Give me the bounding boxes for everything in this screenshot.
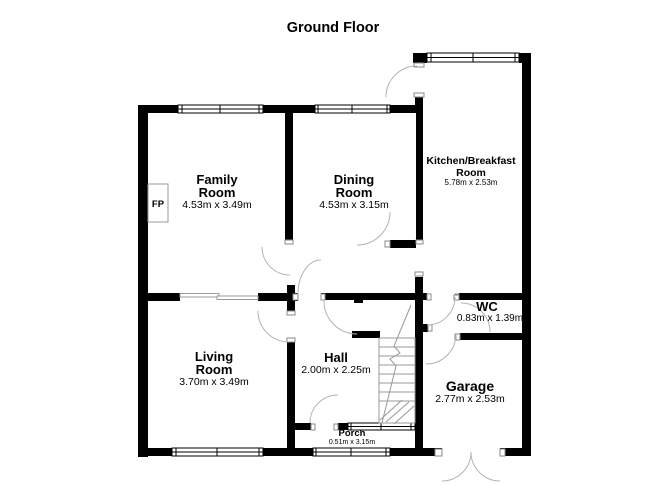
page-title: Ground Floor — [287, 20, 380, 36]
garage-name: Garage — [446, 378, 494, 394]
wall-hall-north — [321, 293, 427, 300]
fireplace-label: FP — [152, 199, 165, 210]
wall-family-living-left — [138, 293, 180, 301]
jamb — [500, 449, 505, 456]
wall-right-exterior — [522, 53, 531, 456]
window-dining-top — [315, 105, 390, 113]
wc-dims: 0.83m x 1.39m — [457, 313, 523, 324]
wall-stair-stub — [352, 331, 380, 338]
hall-name: Hall — [324, 350, 348, 365]
wall-kitchen-corner-tl — [413, 53, 427, 63]
door-arc-dining — [357, 212, 390, 245]
porch-dims: 0.51m x 3.15m — [329, 439, 375, 446]
door-arc-garage-door-left — [442, 452, 471, 481]
floorplan-page: FP Ground Floor Family Room 4.53m x 3.49… — [0, 0, 668, 486]
porch-name: Porch — [339, 428, 366, 439]
jamb — [285, 240, 293, 244]
jamb — [311, 424, 315, 430]
wall-dining-kitchen-divider — [416, 113, 423, 240]
jamb — [385, 241, 390, 247]
jamb — [414, 93, 424, 97]
wall-porch-top-left — [287, 423, 311, 430]
wall-cross-poke — [287, 285, 295, 293]
wall-top-family-left — [138, 105, 178, 113]
wall-bottom-porch-right — [390, 448, 442, 456]
door-arc-hall-north-up — [298, 260, 321, 294]
jamb — [415, 272, 423, 276]
wall-hinge-tick — [354, 300, 363, 303]
jamb — [321, 294, 325, 300]
door-arc-hall-north-down — [324, 301, 357, 334]
jamb — [456, 334, 460, 340]
family-room-name-2: Room — [199, 185, 236, 200]
floorplan-canvas: FP Ground Floor Family Room 4.53m x 3.49… — [0, 0, 668, 486]
wall-garage-top-stub — [415, 324, 428, 332]
labels: Ground Floor Family Room 4.53m x 3.49m D… — [179, 20, 523, 446]
kitchen-dims: 5.78m x 2.53m — [445, 178, 498, 187]
jamb — [416, 240, 423, 244]
door-arc-front-door — [310, 395, 338, 423]
window-family-top — [178, 105, 263, 113]
wall-left-exterior — [138, 105, 148, 457]
garage-dims: 2.77m x 2.53m — [435, 393, 505, 405]
jamb — [428, 325, 432, 331]
living-room-name-2: Room — [196, 362, 233, 377]
dining-room-dims: 4.53m x 3.15m — [319, 199, 389, 211]
opening-family-living — [180, 294, 258, 300]
wc-name: WC — [476, 299, 498, 314]
wall-living-hall-main — [287, 342, 295, 448]
dining-room-name-2: Room — [336, 185, 373, 200]
wall-bottom-living-left — [138, 448, 172, 456]
window-living-bottom — [172, 448, 263, 456]
wall-kitchen-west-lower — [415, 97, 423, 113]
door-arc-living — [258, 311, 289, 342]
wall-family-dining-divider — [285, 113, 293, 240]
jamb — [427, 294, 431, 300]
jamb — [435, 449, 442, 456]
wall-top-between-windows — [263, 105, 315, 113]
wall-family-living-right — [258, 293, 298, 301]
staircase — [379, 305, 415, 424]
family-room-dims: 4.53m x 3.49m — [182, 199, 252, 211]
door-arc-kitchen-lobby — [427, 297, 455, 325]
fireplace: FP — [148, 184, 168, 222]
jamb — [287, 338, 295, 342]
door-arc-garage-door-right — [471, 452, 500, 481]
jamb — [287, 311, 295, 315]
wall-bottom-center — [263, 448, 313, 456]
wall-living-hall-stub — [287, 301, 295, 311]
hall-dims: 2.00m x 2.25m — [301, 364, 371, 376]
door-arc-family — [262, 247, 290, 275]
kitchen-name-1: Kitchen/Breakfast — [426, 155, 516, 167]
wall-hall-garage-divider — [415, 277, 423, 448]
jamb — [334, 424, 338, 430]
door-arc-garage-internal — [426, 334, 456, 364]
door-arc-kitchen-external — [386, 66, 417, 97]
living-room-dims: 3.70m x 3.49m — [179, 376, 249, 388]
wall-wc-bottom — [460, 333, 522, 340]
window-porch-bottom — [313, 448, 390, 456]
wall-dining-bottom-stub — [390, 240, 416, 248]
jamb — [293, 294, 298, 300]
window-kitchen-top — [427, 53, 519, 62]
